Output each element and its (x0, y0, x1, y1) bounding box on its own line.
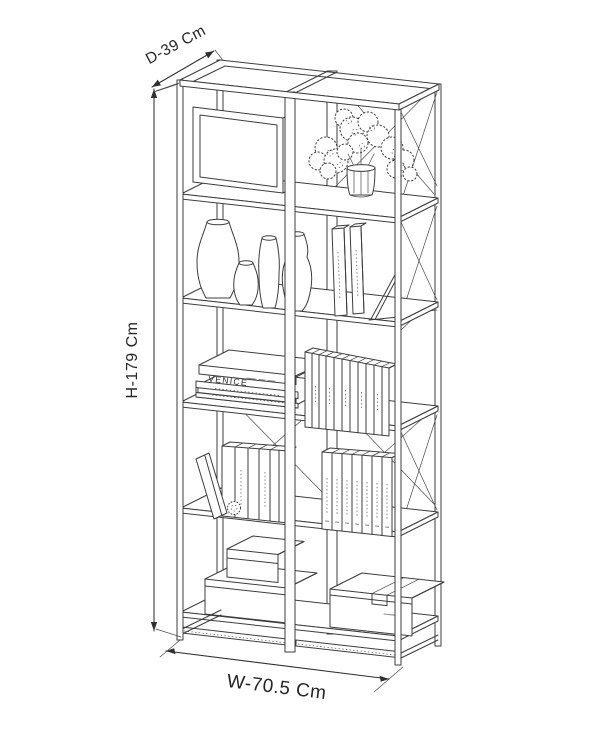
depth-arrowhead-right (205, 51, 214, 58)
flower-vase (347, 165, 375, 197)
pinecone (228, 502, 241, 515)
bookshelf-dimension-diagram: VENICE (0, 0, 600, 737)
width-dimension-line (166, 651, 389, 679)
book-row-shelf4-right (322, 448, 400, 537)
width-dimension-label: W-70.5 Cm (226, 671, 328, 704)
height-dimension: H-179 Cm (124, 83, 181, 637)
book-row-shelf3-right (305, 348, 397, 436)
depth-dimension-label: D-39 Cm (143, 22, 209, 68)
depth-arrowhead-left (152, 80, 161, 87)
height-dimension-label: H-179 Cm (124, 322, 141, 399)
width-arrowhead-left (166, 648, 176, 654)
width-arrowhead-right (380, 676, 390, 682)
framed-back-panel (193, 107, 290, 193)
height-arrowhead-bottom (151, 622, 157, 631)
height-arrowhead-top (151, 89, 157, 98)
